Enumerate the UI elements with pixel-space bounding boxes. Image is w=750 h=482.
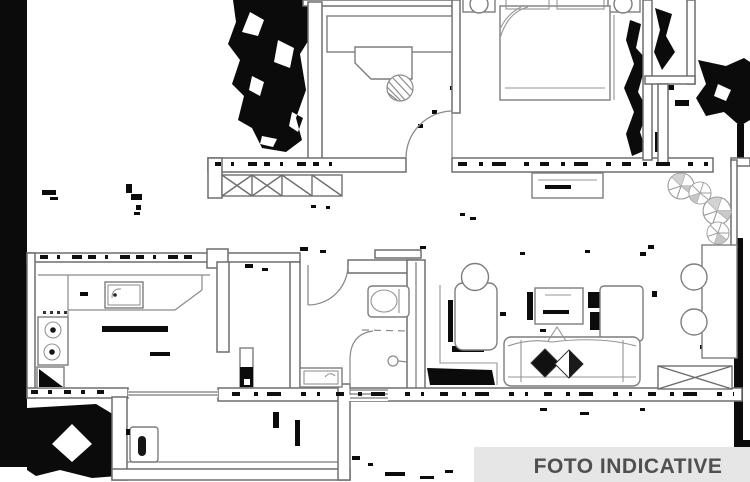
corner-unit <box>37 367 64 388</box>
terrace-wall-a <box>687 0 695 84</box>
photo-indicative-banner: FOTO INDICATIVE <box>474 447 750 482</box>
kitchen-sink <box>105 282 143 308</box>
round-stool-bottom <box>681 309 707 335</box>
wicker-stool <box>387 75 413 101</box>
bedside-lamp-right <box>614 0 632 13</box>
utility-left-wall <box>112 397 127 480</box>
window-sill <box>532 173 603 198</box>
double-bed <box>500 0 614 100</box>
terrace-wall-e <box>731 160 737 247</box>
terrace-wall-c <box>658 84 668 164</box>
bedside-lamp-left <box>470 0 488 13</box>
round-side-table <box>462 264 489 291</box>
toilet <box>368 286 409 317</box>
dressing-room-furniture <box>327 16 452 101</box>
terrace-shrubs <box>668 173 731 244</box>
wash-basin <box>300 368 342 387</box>
shrub-icon <box>707 222 729 244</box>
round-stool-top <box>681 264 707 290</box>
kitchen-right-wall <box>217 262 229 352</box>
entry-artifact-blob <box>228 0 312 152</box>
bathroom-left-wall <box>290 262 300 397</box>
shower <box>350 330 408 395</box>
bookcase <box>600 286 643 341</box>
dressing-door <box>406 111 452 158</box>
bathroom-door <box>308 265 348 305</box>
terrace-wall-b <box>645 76 695 84</box>
utility-bottom-wall <box>112 469 350 480</box>
bedroom-divider-wall <box>452 0 460 113</box>
floor-plan-image: FOTO INDICATIVE <box>0 0 750 482</box>
dressing-left-wall <box>308 2 322 162</box>
shrub-icon <box>703 197 731 225</box>
living-top-stub-wall <box>375 250 421 258</box>
kitchen-window <box>128 390 218 397</box>
lower-left-wall <box>27 253 35 398</box>
radiator-window-living <box>658 366 732 389</box>
living-room <box>427 245 737 389</box>
floor-plan-drawing: FOTO INDICATIVE <box>0 0 750 482</box>
hall-cabinet <box>240 348 253 387</box>
banner-label: FOTO INDICATIVE <box>534 455 723 478</box>
water-heater <box>126 427 158 462</box>
lower-top-wall <box>27 253 300 262</box>
bathroom <box>300 286 409 395</box>
terrace-artifact-blob <box>696 58 750 126</box>
gas-hob <box>38 311 68 365</box>
dressing-top-wall <box>303 0 455 6</box>
armchair <box>455 283 497 350</box>
sideboard <box>702 245 737 358</box>
left-edge-artifact-bar <box>0 0 27 467</box>
bedroom-furniture <box>463 0 640 100</box>
radiator-window-upper <box>222 175 342 196</box>
utility-artifact-blob <box>27 404 118 478</box>
vanity-desk <box>355 47 412 79</box>
cabinet-artifact <box>427 368 495 385</box>
upper-bottom-wall-left <box>208 158 406 172</box>
tv-unit <box>535 288 583 324</box>
